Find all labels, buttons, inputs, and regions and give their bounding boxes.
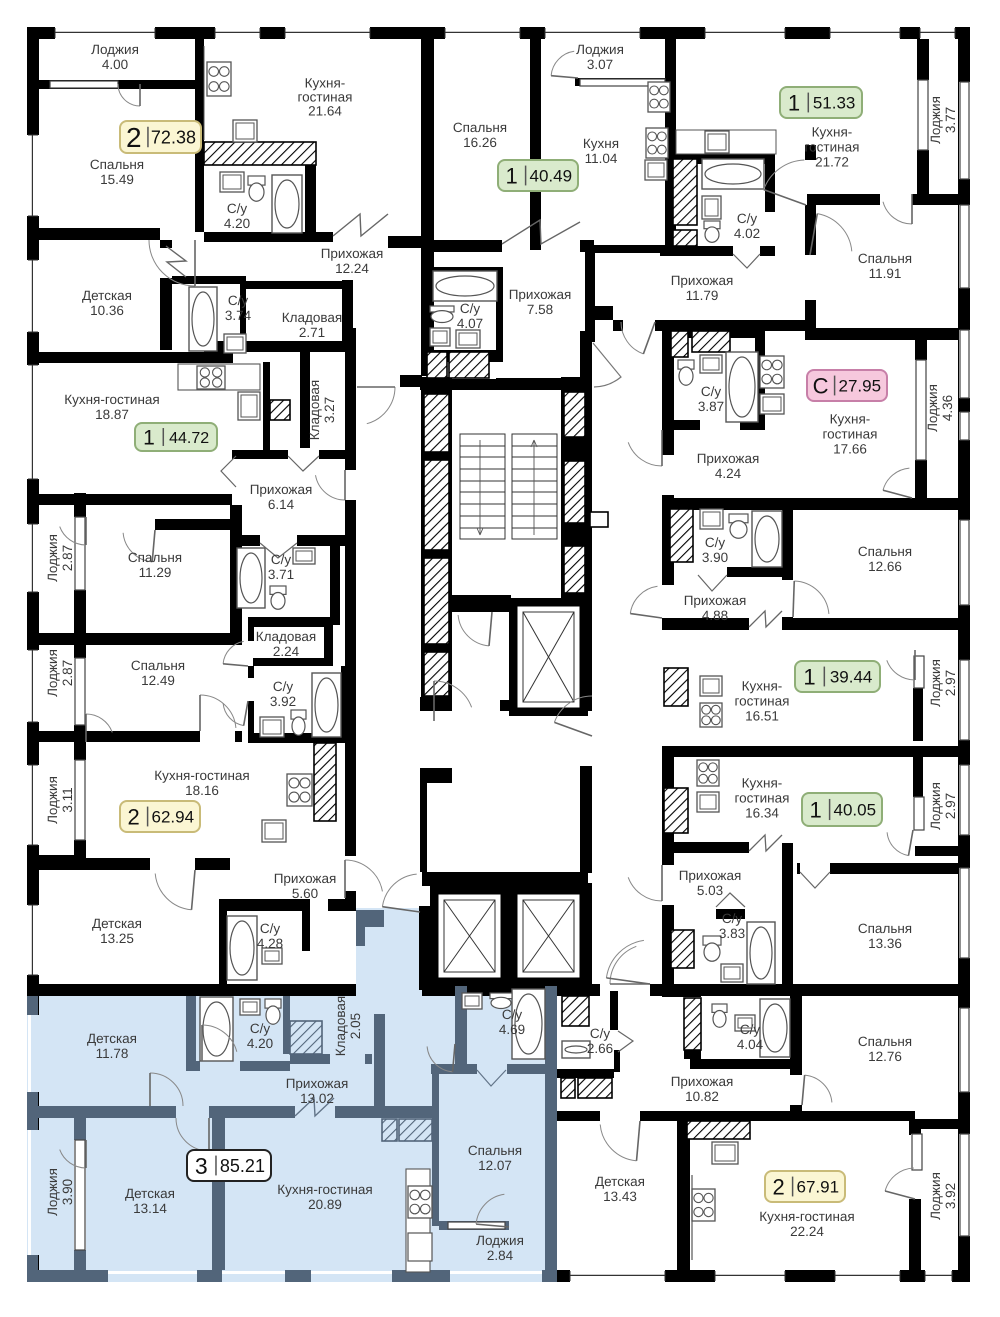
svg-text:6.14: 6.14 xyxy=(268,497,295,512)
svg-text:Кухня-: Кухня- xyxy=(812,125,853,140)
svg-text:С/у: С/у xyxy=(460,301,481,316)
svg-text:11.29: 11.29 xyxy=(139,565,172,580)
svg-text:22.24: 22.24 xyxy=(790,1224,824,1239)
svg-text:4.04: 4.04 xyxy=(737,1037,764,1052)
svg-text:Кладовая: Кладовая xyxy=(282,310,342,325)
svg-text:13.43: 13.43 xyxy=(603,1189,637,1204)
svg-text:3.87: 3.87 xyxy=(698,399,724,414)
svg-text:4.00: 4.00 xyxy=(102,57,128,72)
svg-text:Кухня: Кухня xyxy=(583,136,619,151)
svg-text:2.87: 2.87 xyxy=(60,660,75,686)
svg-text:2.24: 2.24 xyxy=(273,644,300,659)
svg-text:4.36: 4.36 xyxy=(940,395,955,421)
svg-text:2.97: 2.97 xyxy=(943,793,958,819)
svg-text:Прихожая: Прихожая xyxy=(286,1076,349,1091)
svg-text:Прихожая: Прихожая xyxy=(321,246,384,261)
svg-text:85.21: 85.21 xyxy=(220,1156,265,1176)
svg-text:Кухня-гостиная: Кухня-гостиная xyxy=(64,392,160,407)
svg-text:62.94: 62.94 xyxy=(152,808,195,827)
svg-text:Лоджия: Лоджия xyxy=(45,776,60,824)
svg-text:44.72: 44.72 xyxy=(169,430,209,447)
svg-text:12.76: 12.76 xyxy=(868,1049,902,1064)
svg-text:3.77: 3.77 xyxy=(943,107,958,133)
svg-text:2: 2 xyxy=(772,1174,784,1199)
svg-text:С/у: С/у xyxy=(260,921,281,936)
svg-text:3: 3 xyxy=(195,1153,208,1179)
svg-text:2: 2 xyxy=(127,804,139,829)
svg-text:3.11: 3.11 xyxy=(60,787,75,812)
svg-text:40.49: 40.49 xyxy=(530,167,573,186)
svg-text:4.28: 4.28 xyxy=(257,936,283,951)
svg-text:Кухня-: Кухня- xyxy=(742,776,783,791)
svg-text:51.33: 51.33 xyxy=(813,94,856,113)
svg-text:2.71: 2.71 xyxy=(299,325,325,340)
svg-text:Лоджия: Лоджия xyxy=(476,1233,524,1248)
svg-text:12.07: 12.07 xyxy=(478,1158,512,1173)
svg-text:16.26: 16.26 xyxy=(463,135,497,150)
svg-text:Прихожая: Прихожая xyxy=(684,593,747,608)
svg-text:Лоджия: Лоджия xyxy=(45,649,60,697)
svg-text:Лоджия: Лоджия xyxy=(928,659,943,707)
svg-text:10.36: 10.36 xyxy=(90,303,124,318)
svg-text:Кухня-: Кухня- xyxy=(305,76,346,91)
svg-text:4.20: 4.20 xyxy=(247,1036,273,1051)
svg-text:12.49: 12.49 xyxy=(141,673,175,688)
svg-text:15.49: 15.49 xyxy=(100,172,134,187)
svg-text:2.66: 2.66 xyxy=(587,1041,613,1056)
svg-text:2.97: 2.97 xyxy=(943,670,958,696)
svg-text:Лоджия: Лоджия xyxy=(45,1168,60,1216)
svg-text:С/у: С/у xyxy=(701,384,722,399)
svg-text:Спальня: Спальня xyxy=(858,921,912,936)
svg-text:Кухня-гостиная: Кухня-гостиная xyxy=(277,1182,373,1197)
svg-text:2: 2 xyxy=(126,122,142,153)
svg-text:3.83: 3.83 xyxy=(719,926,745,941)
svg-text:18.87: 18.87 xyxy=(95,407,129,422)
svg-text:C: C xyxy=(813,373,829,398)
svg-text:20.89: 20.89 xyxy=(308,1197,342,1212)
svg-text:4.20: 4.20 xyxy=(224,216,250,231)
svg-text:Кладовая: Кладовая xyxy=(333,996,348,1056)
svg-text:Прихожая: Прихожая xyxy=(250,482,313,497)
svg-text:Детская: Детская xyxy=(595,1174,645,1189)
svg-text:4.69: 4.69 xyxy=(499,1022,525,1037)
svg-text:С/у: С/у xyxy=(228,293,249,308)
svg-text:Спальня: Спальня xyxy=(468,1143,522,1158)
svg-text:10.82: 10.82 xyxy=(685,1089,719,1104)
svg-text:11.78: 11.78 xyxy=(96,1046,129,1061)
svg-text:Спальня: Спальня xyxy=(858,1034,912,1049)
svg-text:1: 1 xyxy=(505,163,517,188)
svg-text:13.14: 13.14 xyxy=(133,1201,167,1216)
svg-text:2.05: 2.05 xyxy=(348,1013,363,1039)
svg-text:12.66: 12.66 xyxy=(868,559,902,574)
svg-text:27.95: 27.95 xyxy=(839,377,882,396)
svg-text:3.92: 3.92 xyxy=(943,1183,958,1209)
svg-text:Детская: Детская xyxy=(87,1031,137,1046)
svg-text:4.24: 4.24 xyxy=(715,466,742,481)
svg-text:Спальня: Спальня xyxy=(128,550,182,565)
svg-text:3.71: 3.71 xyxy=(268,567,294,582)
svg-text:1: 1 xyxy=(143,427,155,450)
svg-text:4.88: 4.88 xyxy=(702,608,728,623)
svg-text:Спальня: Спальня xyxy=(131,658,185,673)
svg-text:16.51: 16.51 xyxy=(745,709,779,724)
svg-text:С/у: С/у xyxy=(271,552,292,567)
svg-text:13.25: 13.25 xyxy=(100,931,134,946)
svg-text:67.91: 67.91 xyxy=(797,1178,840,1197)
svg-text:Прихожая: Прихожая xyxy=(509,287,572,302)
svg-text:16.34: 16.34 xyxy=(745,806,779,821)
svg-text:4.07: 4.07 xyxy=(457,316,483,331)
svg-text:5.03: 5.03 xyxy=(697,883,723,898)
svg-text:Детская: Детская xyxy=(125,1186,175,1201)
svg-text:Прихожая: Прихожая xyxy=(671,273,734,288)
svg-text:С/у: С/у xyxy=(737,211,758,226)
svg-text:13.36: 13.36 xyxy=(868,936,902,951)
svg-text:С/у: С/у xyxy=(250,1021,271,1036)
svg-text:гостиная: гостиная xyxy=(298,90,353,105)
svg-text:21.72: 21.72 xyxy=(815,155,849,170)
svg-text:11.91: 11.91 xyxy=(869,266,902,281)
svg-text:Спальня: Спальня xyxy=(858,544,912,559)
svg-text:4.02: 4.02 xyxy=(734,226,760,241)
svg-text:гостиная: гостиная xyxy=(735,694,790,709)
svg-text:21.64: 21.64 xyxy=(308,104,342,119)
svg-text:Кухня-: Кухня- xyxy=(742,679,783,694)
svg-text:Прихожая: Прихожая xyxy=(697,451,760,466)
svg-text:40.05: 40.05 xyxy=(834,801,877,820)
svg-text:17.66: 17.66 xyxy=(833,442,867,457)
svg-text:С/у: С/у xyxy=(740,1022,761,1037)
svg-text:Лоджия: Лоджия xyxy=(91,42,139,57)
svg-text:Спальня: Спальня xyxy=(453,120,507,135)
svg-text:12.24: 12.24 xyxy=(335,261,369,276)
svg-text:5.60: 5.60 xyxy=(292,886,318,901)
svg-text:72.38: 72.38 xyxy=(151,127,196,147)
svg-text:гостиная: гостиная xyxy=(823,427,878,442)
svg-text:Кладовая: Кладовая xyxy=(307,380,322,440)
svg-text:3.90: 3.90 xyxy=(60,1179,75,1205)
svg-text:Кухня-гостиная: Кухня-гостиная xyxy=(154,768,250,783)
svg-text:2.84: 2.84 xyxy=(487,1248,514,1263)
svg-text:7.58: 7.58 xyxy=(527,302,553,317)
svg-text:С/у: С/у xyxy=(227,201,248,216)
svg-text:Прихожая: Прихожая xyxy=(679,868,742,883)
svg-text:гостиная: гостиная xyxy=(735,791,790,806)
svg-text:Лоджия: Лоджия xyxy=(576,42,624,57)
svg-text:Детская: Детская xyxy=(82,288,132,303)
svg-text:С/у: С/у xyxy=(273,679,294,694)
svg-text:1: 1 xyxy=(809,797,821,822)
svg-text:Прихожая: Прихожая xyxy=(671,1074,734,1089)
svg-text:3.74: 3.74 xyxy=(225,308,252,323)
svg-text:Кухня-гостиная: Кухня-гостиная xyxy=(759,1209,855,1224)
svg-text:С/у: С/у xyxy=(590,1026,611,1041)
svg-text:Детская: Детская xyxy=(92,916,142,931)
svg-text:3.07: 3.07 xyxy=(587,57,613,72)
svg-text:Лоджия: Лоджия xyxy=(928,96,943,144)
svg-text:Лоджия: Лоджия xyxy=(928,1172,943,1220)
svg-text:Лоджия: Лоджия xyxy=(925,384,940,432)
svg-text:3.27: 3.27 xyxy=(322,397,337,423)
svg-text:18.16: 18.16 xyxy=(185,783,219,798)
svg-text:Лоджия: Лоджия xyxy=(45,534,60,582)
svg-text:Спальня: Спальня xyxy=(90,157,144,172)
svg-text:Кухня-: Кухня- xyxy=(830,412,871,427)
svg-text:Кладовая: Кладовая xyxy=(256,629,316,644)
svg-text:3.92: 3.92 xyxy=(270,694,296,709)
svg-text:39.44: 39.44 xyxy=(830,668,873,687)
svg-text:гостиная: гостиная xyxy=(805,140,860,155)
svg-text:11.79: 11.79 xyxy=(686,288,719,303)
svg-text:С/у: С/у xyxy=(722,911,743,926)
svg-text:13.02: 13.02 xyxy=(300,1091,334,1106)
svg-text:С/у: С/у xyxy=(705,535,726,550)
svg-text:11.04: 11.04 xyxy=(585,151,618,166)
svg-text:2.87: 2.87 xyxy=(60,545,75,571)
svg-text:1: 1 xyxy=(803,664,815,689)
svg-text:Прихожая: Прихожая xyxy=(274,871,337,886)
svg-text:Лоджия: Лоджия xyxy=(928,782,943,830)
svg-text:3.90: 3.90 xyxy=(702,550,728,565)
svg-text:Спальня: Спальня xyxy=(858,251,912,266)
svg-text:С/у: С/у xyxy=(502,1007,523,1022)
svg-text:1: 1 xyxy=(788,90,800,115)
